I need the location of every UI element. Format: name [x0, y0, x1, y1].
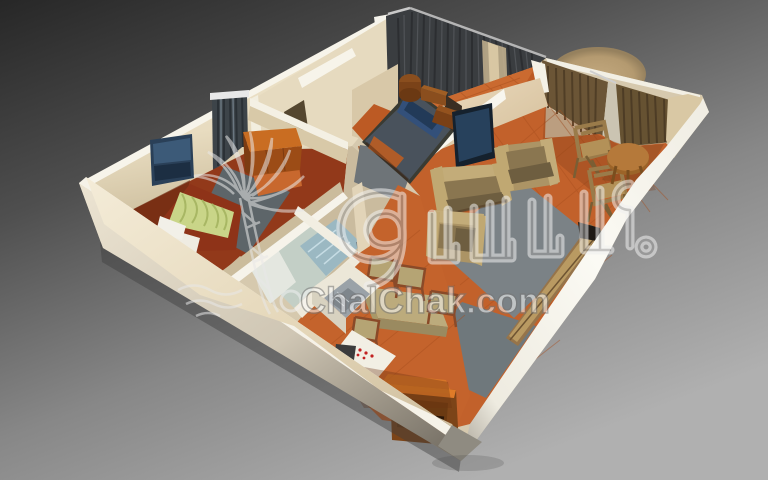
svg-text:ChalChak.com: ChalChak.com: [300, 280, 550, 321]
